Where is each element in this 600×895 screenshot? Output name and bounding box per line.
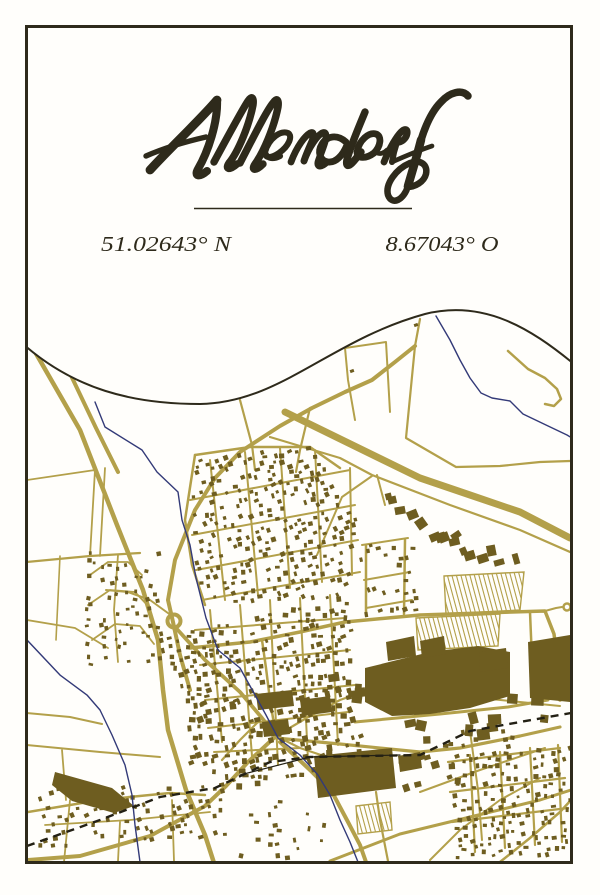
svg-text:8.67043° O: 8.67043° O: [386, 232, 499, 256]
svg-text:51.02643° N: 51.02643° N: [101, 232, 232, 256]
